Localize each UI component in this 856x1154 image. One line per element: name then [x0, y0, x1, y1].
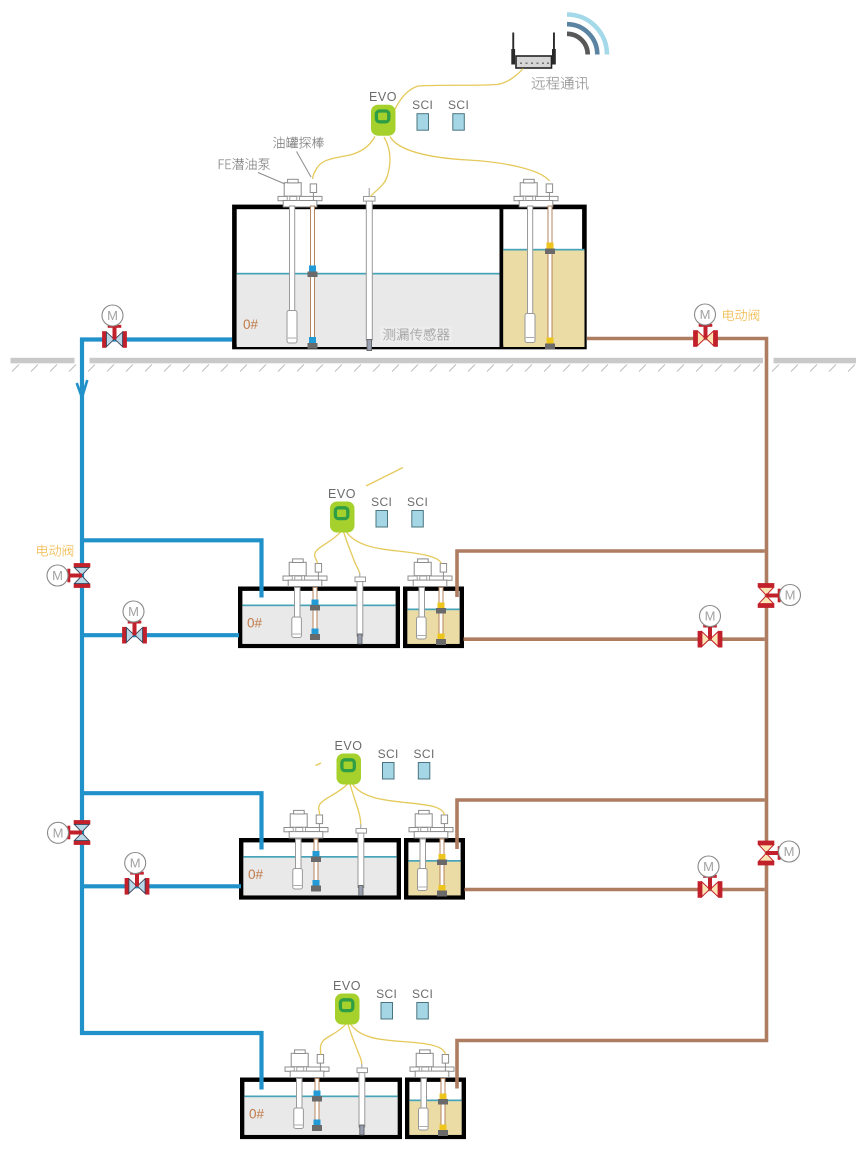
svg-text:0#: 0#: [243, 317, 259, 332]
